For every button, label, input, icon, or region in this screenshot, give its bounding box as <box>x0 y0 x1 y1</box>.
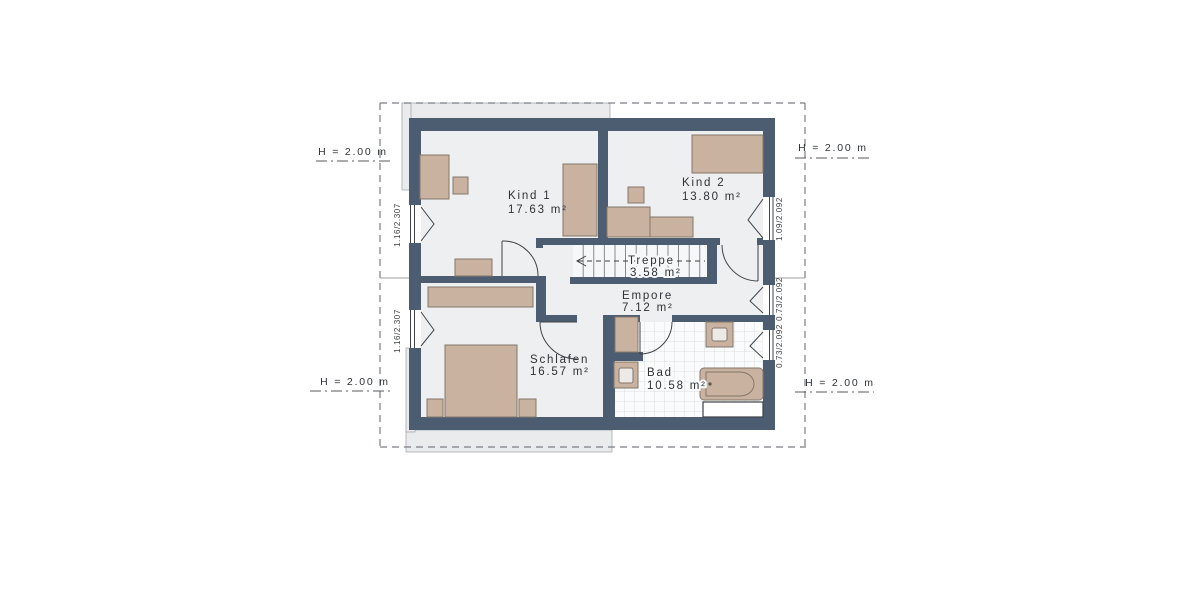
schlafen-wardrobe <box>428 287 533 307</box>
kind1-nightstand <box>453 177 468 194</box>
dim-right-top: 1.09/2.092 <box>775 197 784 241</box>
wall-outer-right-b <box>763 240 775 285</box>
dim-left-top: 1.16/2.307 <box>393 203 402 247</box>
kind2-desk-b <box>650 217 693 237</box>
wall-bad-partition <box>615 352 643 361</box>
wall-landing-stub <box>536 238 543 248</box>
kind1-area: 17.63 m² <box>508 204 568 216</box>
wall-outer-top <box>409 118 775 131</box>
bad-cabinet <box>615 317 638 352</box>
kind2-bed <box>692 135 763 173</box>
wall-bad-top-b <box>672 315 763 322</box>
dim-left-bottom: 1.16/2.307 <box>393 309 402 353</box>
bad-toilet-bowl <box>619 368 633 383</box>
height-marker-bottom-left: H = 2.00 m <box>320 376 390 388</box>
dim-right-mid: 0.73/2.092 <box>775 277 784 321</box>
bad-label: Bad <box>647 367 673 379</box>
bad-washbasin-bowl <box>712 328 727 341</box>
wall-outer-bottom <box>409 417 775 430</box>
wall-stair-top-right-stub <box>757 238 763 245</box>
wall-outer-left-c <box>409 348 421 417</box>
kind1-bed <box>420 155 449 199</box>
bad-niche <box>703 402 763 417</box>
floor-plan-canvas: Kind 1 17.63 m² Kind 2 13.80 m² Treppe 3… <box>0 0 1200 600</box>
schlafen-area: 16.57 m² <box>530 366 590 378</box>
wall-stair-right <box>707 245 717 277</box>
treppe-label: Treppe <box>628 255 675 267</box>
schlafen-nightstand-left <box>427 399 443 417</box>
overhang-band-bottom <box>406 430 612 452</box>
kind2-stool <box>628 187 644 203</box>
dim-right-bottom: 0.73/2.092 <box>775 324 784 368</box>
bad-bathtub-drain <box>708 382 711 385</box>
overhang-band-top <box>402 103 610 119</box>
height-marker-top-right: H = 2.00 m <box>798 142 868 154</box>
wall-outer-right-c <box>763 315 775 330</box>
wall-outer-left-a <box>409 131 421 205</box>
wall-empore-schlafen <box>546 315 577 322</box>
schlafen-nightstand-right <box>519 399 536 417</box>
wall-stair-top <box>536 238 720 245</box>
empore-area: 7.12 m² <box>622 302 674 314</box>
wall-landing-left <box>536 276 546 322</box>
floor-plan-drawing: Kind 1 17.63 m² Kind 2 13.80 m² Treppe 3… <box>0 0 1200 600</box>
kind2-area: 13.80 m² <box>682 191 742 203</box>
wall-outer-right-d <box>763 360 775 417</box>
empore-label: Empore <box>622 290 673 302</box>
height-marker-bottom-right: H = 2.00 m <box>805 377 875 389</box>
kind1-desk <box>455 259 492 276</box>
wall-outer-right-a <box>763 131 775 197</box>
schlafen-bed <box>445 345 517 417</box>
schlafen-label: Schlafen <box>530 354 589 366</box>
kind1-label: Kind 1 <box>508 190 551 202</box>
kind1-wardrobe <box>563 164 597 236</box>
bad-area: 10.58 m² <box>647 380 707 392</box>
treppe-area: 3.58 m² <box>630 267 682 279</box>
wall-schlafen-bad <box>603 315 615 430</box>
height-marker-top-left: H = 2.00 m <box>318 146 388 158</box>
kind2-desk-a <box>607 207 650 237</box>
kind2-label: Kind 2 <box>682 177 725 189</box>
wall-kind1-schlafen <box>409 276 540 283</box>
